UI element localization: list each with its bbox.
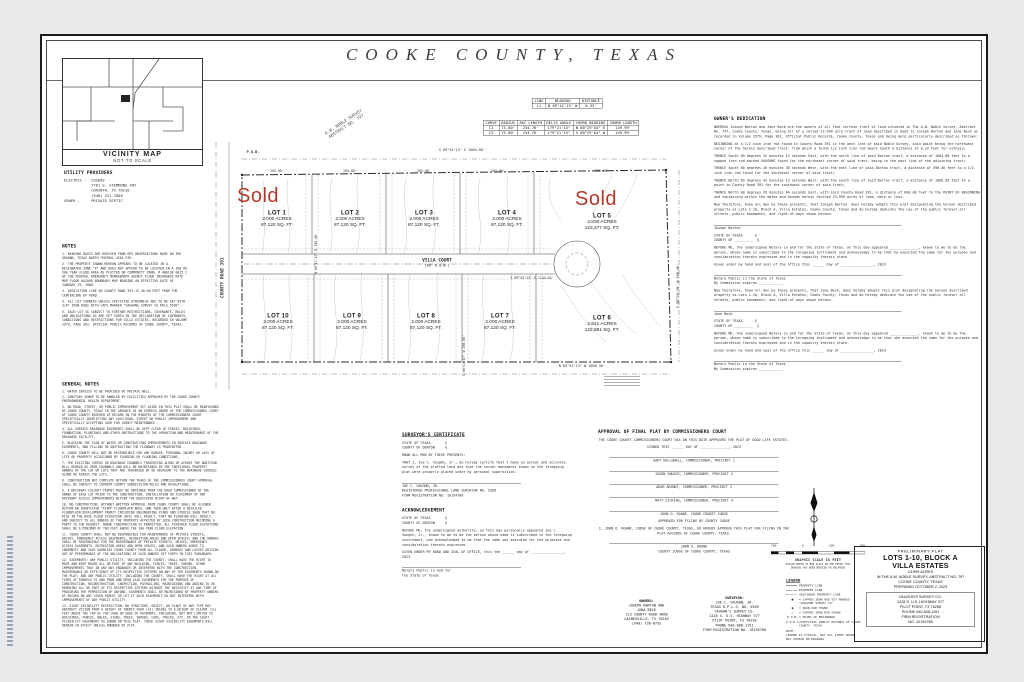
dedication-block: STATE OF TEXAS § COUNTY OF _________ § [714, 233, 982, 243]
note-item: 2. THE PROPERTY SHOWN HEREON APPEARS TO … [62, 262, 188, 287]
owners-contact-line: (940) 736-0792 [604, 622, 689, 627]
commissioners-approval-section: APPROVAL OF FINAL PLAT BY COMMISSIONERS … [598, 429, 790, 555]
curve-table: CURVE RADIUS ARC LENGTH DELTA ANGLE CHOR… [483, 120, 639, 136]
general-note-item: 8. CONSTRUCTION NOT COMPLETE WITHIN TWO … [62, 479, 219, 487]
legend-symbol-item: ■ = CAPPED IRON ROD SET MARKED "VAUGHNS … [786, 598, 861, 606]
sold-overlay-lot-5: Sold [575, 188, 617, 211]
road-name: VILLA COURT [422, 258, 452, 263]
general-note-item: 4. ALL SURFACE DRAINAGE EASEMENTS SHALL … [62, 428, 219, 440]
lot-5-name: LOT 5 [567, 212, 637, 219]
adjoiner-owner-text [604, 376, 640, 388]
general-note-item: 11. COOKE COUNTY SHALL NOT BE RESPONSIBL… [62, 533, 219, 557]
scale-note: PLEASE REFER TO BAR SCALE IN THE EVENT T… [768, 563, 868, 570]
lot4-frontage-label: 265.00' [468, 169, 528, 173]
surveyors-certificate-section: SURVEYOR'S CERTIFICATE STATE OF TEXAS § … [402, 432, 572, 581]
lot-3-label: LOT 3 2.000 ACRES 87,120 SQ. FT. [389, 209, 459, 228]
legend-line-swatch [786, 585, 797, 586]
general-note-item: 3. NO ROAD, STREET, OR PUBLIC IMPROVEMEN… [62, 406, 219, 426]
dedication-block: THENCE North 89 degrees 42 minutes 13 se… [714, 178, 982, 188]
curve-table-row-c1: C1 75.00' 234.76' 179°21'15" N 00°29'04"… [483, 125, 639, 130]
lot-4-label: LOT 4 2.000 ACRES 87,120 SQ. FT. [472, 209, 542, 228]
approval-block: THE COOKE COUNTY COMMISSIONERS COURT HAS… [598, 438, 790, 443]
lot5-frontage-label: 295.00' [572, 169, 632, 173]
dedication-block: Now therefore, know all men by these pre… [714, 203, 982, 217]
lot-2-name: LOT 2 [315, 209, 385, 216]
note-item: 4. ALL LOT CORNERS UNLESS SPECIFIED OTHE… [62, 299, 188, 307]
curve-table-header-chord-bearing: CHORD BEARING [574, 120, 608, 125]
divider-bearing-2: S 00°17'47" W 290.00' [462, 335, 466, 376]
commissioners-approval-title: APPROVAL OF FINAL PLAT BY COMMISSIONERS … [598, 429, 790, 435]
lot-9-sqft: 87,120 SQ. FT. [317, 325, 387, 331]
legend-symbol-glyph: ■ [786, 598, 799, 602]
utility-providers-section: UTILITY PROVIDERS ELECTRIC - COSERV 7701… [64, 170, 214, 203]
lot-10-label: LOT 10 2.000 ACRES 87,120 SQ. FT. [243, 312, 313, 331]
notes-title: NOTES [62, 244, 188, 250]
surveyor-contact-block: SURVEYOR: JOE C. VAUGHN, JR.TEXAS R.P.L.… [692, 596, 777, 632]
dedication-block: THENCE North 00 degrees 29 minutes 04 se… [714, 190, 982, 200]
curve-table-header-chord-length: CHORD LENGTH [607, 120, 639, 125]
lot-9-name: LOT 9 [317, 312, 387, 319]
general-note-item: 7. THE EXISTING CREEKS OR DRAINAGE CHANN… [62, 461, 219, 477]
certificate-block: KNOW ALL MEN BY THESE PRESENTS: [402, 453, 572, 458]
lot-8-name: LOT 8 [391, 312, 461, 319]
lot-7-label: LOT 7 2.000 ACRES 87,120 SQ. FT. [465, 312, 535, 331]
certificate-block: THAT I, Joe C. Vaughn, Jr., do hereby ce… [402, 460, 572, 474]
lot-6-label: LOT 6 2.821 ACRES 122,881 SQ. FT. [567, 314, 637, 333]
lot-5-label: LOT 5 2.830 ACRES 123,277 SQ. FT. [567, 212, 637, 231]
road-centerline-bearing: S 89°42'13" E 1144.04' [482, 276, 582, 280]
certificate-block: STATE OF TEXAS § COUNTY OF DENTON § [402, 441, 572, 451]
dedication-block: Notary Public in the State of Texas My C… [714, 361, 902, 372]
graphic-scale: 100 0 100 200 GRAPHIC SCALE IN FEET PLEA… [768, 544, 868, 570]
approval-block: MATT SICKING, COMMISSIONER, PRECINCT 4 [610, 497, 779, 503]
dedication-block: BEFORE ME, the undersigned Notary in and… [714, 331, 982, 345]
note-item: 5. EACH LOT IS SUBJECT TO FURTHER RESTRI… [62, 310, 188, 327]
acknowledgement-title: ACKNOWLEDGEMENT [402, 507, 572, 513]
lot-2-sqft: 87,120 SQ. FT. [315, 222, 385, 228]
legend-symbol-glyph: ○ [786, 611, 799, 615]
dedication-block: THENCE South 89 degrees 42 minutes 13 se… [714, 154, 982, 164]
title-block: PRELIMINARY PLAT LOTS 1-10, BLOCK A VILL… [854, 546, 985, 642]
dedication-block: THENCE South 00 degrees 26 minutes 38 se… [714, 166, 982, 176]
notes-section: NOTES 1. BEARING BASIS ARE DERIVED FROM … [62, 244, 188, 328]
plat-lots-line: LOTS 1-10, BLOCK A [855, 554, 986, 562]
plot-stamp-text [7, 536, 13, 648]
curve-table-header-curve: CURVE [483, 120, 499, 125]
lot2-frontage-label: 265.00' [320, 169, 380, 173]
vicinity-map-roads [62, 58, 203, 150]
site-marker [121, 95, 130, 102]
legend-symbol-glyph: O.P.R.C.T. [786, 620, 799, 624]
legend-line-swatch [786, 590, 797, 591]
page-background: { "sheet": { "title": "COOKE COUNTY, TEX… [0, 0, 1024, 682]
villa-court-label: VILLA COURT (60' R.O.W.) [397, 258, 477, 268]
approval-block: SIGNED THIS ______ DAY OF ______________… [598, 445, 790, 450]
dedication-block: BEGINNING at a 1/2 inch iron rod found i… [714, 142, 982, 152]
approval-block: GARY HOLLOWELL, COMMISSIONER, PRECINCT 1 [610, 458, 779, 464]
curve-table-header-delta: DELTA ANGLE [544, 120, 573, 125]
dedication-block: Given under my hand and seal of the offi… [714, 262, 982, 267]
cul-de-sac [554, 241, 600, 287]
sold-overlay-lot-1: Sold [237, 185, 279, 208]
legend-symbol-glyph: P.O.B. [786, 616, 799, 620]
legend-symbol-item: ● = IRON ROD FOUND [786, 606, 861, 610]
north-boundary-bearing: S 89°42'13" E 1064.00' [412, 148, 512, 152]
lot-10-name: LOT 10 [243, 312, 313, 319]
lot-3-name: LOT 3 [389, 209, 459, 216]
general-note-item: 2. SANITARY SEWER TO BE HANDLED BY FACIL… [62, 396, 219, 404]
dedication-block: Now therefore, know all men by these pre… [714, 288, 982, 302]
lot-1-name: LOT 1 [242, 209, 312, 216]
dedication-block: Notary Public in the State of Texas My C… [714, 275, 902, 286]
general-note-item: 9. A DRIVEWAY CULVERT PERMIT MUST BE OBT… [62, 489, 219, 501]
general-note-item: 6. COOKE COUNTY WILL NOT BE RESPONSIBLE … [62, 451, 219, 459]
lot1-frontage-label: 265.00' [247, 169, 307, 173]
lot-7-name: LOT 7 [465, 312, 535, 319]
title-block-content: PRELIMINARY PLAT LOTS 1-10, BLOCK A VILL… [855, 547, 986, 627]
lot-5-sqft: 123,277 SQ. FT. [567, 225, 637, 231]
curve-table-header-radius: RADIUS [499, 120, 517, 125]
vicinity-map: VICINITY MAP NOT TO SCALE [62, 58, 203, 166]
curve-table-row-c2: C2 75.00' 234.76' 179°21'15" S 00°29'04"… [483, 130, 639, 135]
plat-name: VILLA ESTATES [855, 562, 986, 570]
dedication-block: Jane Beck [714, 311, 902, 317]
north-arrow-icon [799, 488, 829, 548]
note-item: 1. BEARING BASIS ARE DERIVED FROM GPS OB… [62, 252, 188, 260]
legend-symbol-item: ○ = CAPPED IRON ROD FOUND [786, 611, 861, 615]
legend-line-item: ADJOINING PROPERTY LINE [786, 593, 861, 597]
lot-1-sqft: 87,120 SQ. FT. [242, 222, 312, 228]
vicinity-map-title: VICINITY MAP [63, 151, 202, 158]
acknowledgement-block: GIVEN UNDER MY HAND AND SEAL OF OFFICE, … [402, 550, 572, 560]
surveyor-contact-line: FIRM REGISTRATION NO. 10194786 [692, 628, 777, 633]
vicinity-map-subtitle: NOT TO SCALE [63, 158, 202, 163]
owners-contact-block: OWNERS: JOSEPH BARTON ANDJANA BECK113 CO… [604, 599, 689, 626]
acknowledgement-block: STATE OF TEXAS § COUNTY OF DENTON § [402, 516, 572, 526]
legend-line-item: PROPERTY LINE [786, 584, 861, 588]
general-note-item: 13. SIGHT VISIBILITY RESTRICTION: NO STR… [62, 604, 219, 628]
east-boundary-bearing: S 00°26'38" W 598.46' [676, 264, 680, 308]
lot-8-sqft: 87,120 SQ. FT. [391, 325, 461, 331]
acknowledgement-block: Notary Public in and for the State of Te… [402, 568, 521, 579]
divider-bearing-1: N 00°17'47" E 290.00' [314, 233, 318, 274]
lot-7-sqft: 87,120 SQ. FT. [465, 325, 535, 331]
lot-4-sqft: 87,120 SQ. FT. [472, 222, 542, 228]
line-table-header-distance: DISTANCE [580, 98, 603, 103]
dedication-block: STATE OF TEXAS § COUNTY OF _________ § [714, 319, 982, 329]
lot-1-label: LOT 1 2.000 ACRES 87,120 SQ. FT. [242, 209, 312, 228]
general-note-item: 1. WATER SERVICE TO BE PROVIDED BY PRIVA… [62, 390, 219, 394]
legend-title: LEGEND [786, 578, 861, 583]
legend-line-swatch [786, 595, 797, 596]
dedication-block: BEFORE ME, the undersigned Notary in and… [714, 245, 982, 259]
surveyors-certificate-title: SURVEYOR'S CERTIFICATE [402, 432, 572, 438]
owners-dedication-section: OWNER'S DEDICATION WHEREAS Joseph Barton… [714, 116, 982, 374]
approval-block: APPROVED FOR FILING BY COUNTY JUDGE [598, 519, 790, 524]
lot-8-label: LOT 8 2.000 ACRES 87,120 SQ. FT. [391, 312, 461, 331]
line-table-row: L1 N 89°42'13" W 0.33' [532, 103, 602, 108]
lot-2-label: LOT 2 2.000 ACRES 87,120 SQ. FT. [315, 209, 385, 228]
general-notes-section: GENERAL NOTES 1. WATER SERVICE TO BE PRO… [62, 382, 219, 630]
pob-label: P.O.B. [238, 150, 268, 154]
plat-prepared-date: PREPARED OCTOBER 2, 2023 [855, 585, 986, 590]
line-table: LINE BEARING DISTANCE L1 N 89°42'13" W 0… [532, 98, 602, 109]
general-note-item: 10. NO CONSTRUCTION, WITHOUT WRITTEN APP… [62, 503, 219, 531]
lot-3-sqft: 87,120 SQ. FT. [389, 222, 459, 228]
dedication-block: Joseph Barton [714, 225, 902, 231]
county-road-label: COUNTY ROAD 391 [220, 257, 225, 298]
approval-block: ADAM ARENDT, COMMISSIONER, PRECINCT 3 [610, 484, 779, 490]
lot-4-name: LOT 4 [472, 209, 542, 216]
general-note-item: 5. BLOCKING THE FLOW OF WATER OR CONSTRU… [62, 441, 219, 449]
road-row-width: (60' R.O.W.) [424, 264, 449, 268]
approval-block: JASON SNUGGS, COMMISSIONER, PRECINCT 2 [610, 471, 779, 477]
note-item: 3. DEDICATION LINE ON COUNTY ROAD 391 IS… [62, 289, 188, 297]
general-note-item: 12. EASEMENTS: ANY PUBLIC UTILITY, INCLU… [62, 559, 219, 603]
approval-block: JOHN O. ROANE, COOKE COUNTY JUDGE [610, 511, 779, 517]
lot-10-sqft: 87,120 SQ. FT. [243, 325, 313, 331]
plat-sheet: COOKE COUNTY, TEXAS [40, 34, 988, 654]
scale-label: GRAPHIC SCALE IN FEET [768, 558, 868, 562]
scale-bar [771, 551, 865, 555]
firm-registration-number: NO. 10194786 [867, 620, 975, 625]
legend-note: NOTE: LEGEND IS TYPICAL, NOT ALL ITEMS S… [786, 630, 861, 642]
general-notes-title: GENERAL NOTES [62, 382, 219, 388]
curve-table-header-arc: ARC LENGTH [517, 120, 544, 125]
certificate-block: JOE C. VAUGHN, JR. REGISTERED PROFESSION… [402, 483, 521, 498]
lot-6-sqft: 122,881 SQ. FT. [567, 327, 637, 333]
legend-symbol-item: O.P.R.C.T. = OFFICIAL PUBLIC RECORDS OF … [786, 620, 861, 628]
firm-info-box: VAUGHN'S SURVEY CO. 1228 S. U.S. HIGHWAY… [866, 592, 975, 626]
dedication-block: WHEREAS Joseph Barton and Jane Beck are … [714, 125, 982, 139]
utility-provider-line: SEWER - PRIVATE SEPTIC [64, 198, 214, 203]
owners-dedication-title: OWNER'S DEDICATION [714, 116, 982, 122]
scale-tick-labels: 100 0 100 200 [768, 544, 868, 548]
legend-symbol-item: P.O.B. = POINT OF BEGINNING [786, 616, 861, 620]
lot-6-name: LOT 6 [567, 314, 637, 321]
dedication-block: Given under my hand and seal of the offi… [714, 348, 982, 353]
legend-symbol-glyph: ● [786, 606, 799, 610]
legend-line-item: EASEMENT LINE [786, 589, 861, 593]
lot-9-label: LOT 9 2.000 ACRES 87,120 SQ. FT. [317, 312, 387, 331]
south-boundary-bearing: N 89°42'13" W 1060.50' [532, 364, 632, 368]
lot3-frontage-label: 265.00' [394, 169, 454, 173]
acknowledgement-block: BEFORE ME, the undersigned authority, on… [402, 528, 572, 547]
vicinity-map-caption: VICINITY MAP NOT TO SCALE [62, 150, 203, 166]
utility-providers-title: UTILITY PROVIDERS [64, 170, 214, 176]
approval-block: I, JOHN O. ROANE, JUDGE OF COOKE COUNTY,… [598, 526, 790, 536]
legend-section: LEGEND PROPERTY LINE EASEMENT LINE ADJOI… [786, 578, 861, 641]
approval-block: JOHN O. ROANE COUNTY JUDGE OF COOKE COUN… [610, 544, 779, 555]
